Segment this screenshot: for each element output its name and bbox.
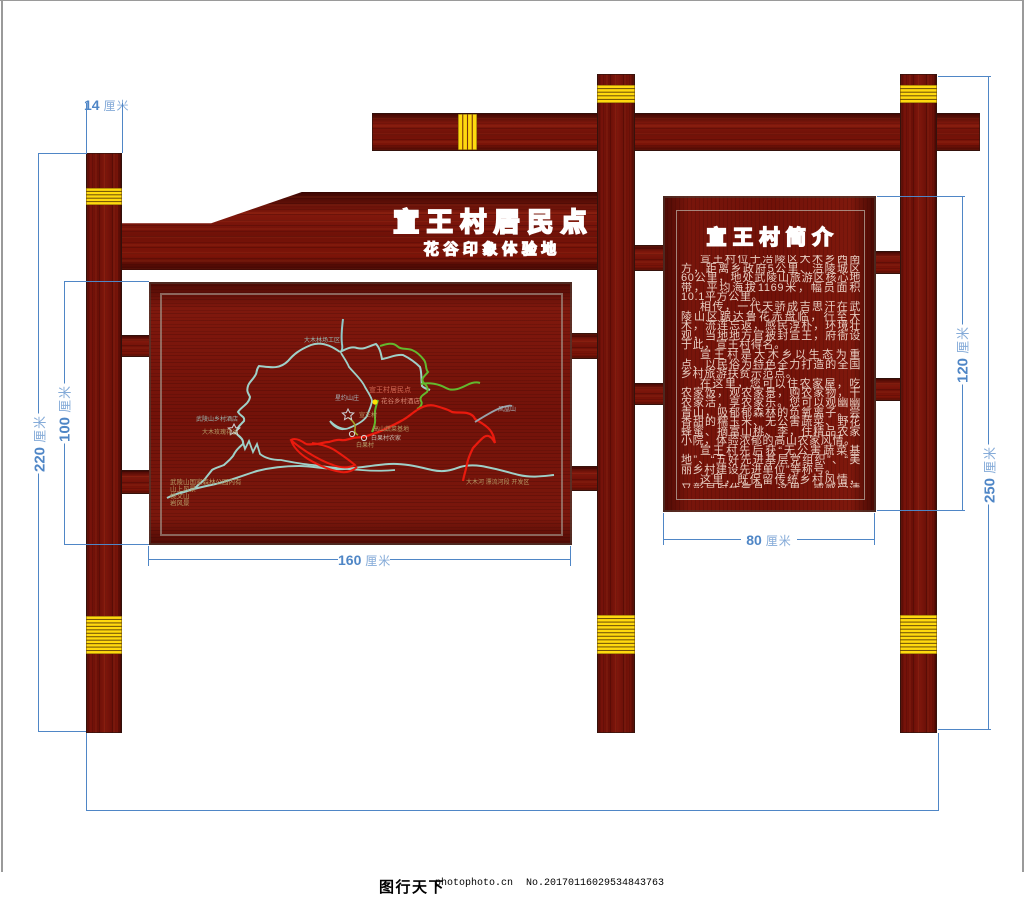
svg-text:桃文山: 桃文山: [170, 491, 190, 500]
svg-text:宣王村: 宣王村: [359, 411, 377, 419]
svg-text:武陵山乡村酒店: 武陵山乡村酒店: [196, 415, 238, 423]
svg-text:大木林场工区: 大木林场工区: [304, 336, 340, 344]
svg-text:凤凰山: 凤凰山: [498, 405, 516, 413]
svg-text:高山蔬菜基地: 高山蔬菜基地: [373, 425, 409, 433]
svg-text:大木河 漂流河段 开发区: 大木河 漂流河段 开发区: [466, 478, 529, 486]
svg-text:宣王村居民点: 宣王村居民点: [369, 385, 411, 394]
svg-text:山上风景: 山上风景: [170, 484, 197, 493]
svg-text:花谷乡村酒店: 花谷乡村酒店: [381, 396, 421, 405]
svg-text:岩风景: 岩风景: [170, 498, 190, 507]
svg-text:星约山庄: 星约山庄: [335, 394, 359, 402]
svg-text:大木玫瑰花谷: 大木玫瑰花谷: [202, 428, 238, 436]
svg-text:白果村: 白果村: [356, 441, 374, 449]
svg-text:武陵山国家森林公园内有: 武陵山国家森林公园内有: [170, 477, 242, 486]
svg-text:白果村农家: 白果村农家: [371, 434, 401, 442]
